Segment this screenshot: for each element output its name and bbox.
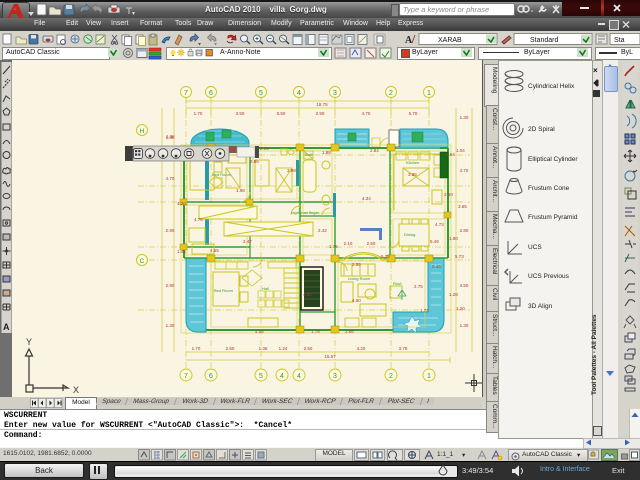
- svg-text:Elliptical Cylinder: Elliptical Cylinder: [528, 156, 578, 163]
- svg-text:2.84: 2.84: [370, 148, 379, 153]
- svg-text:4.76: 4.76: [194, 217, 203, 222]
- svg-text:4.70: 4.70: [460, 168, 469, 173]
- svg-text:UCS: UCS: [528, 244, 542, 251]
- svg-text:4: 4: [297, 373, 301, 380]
- svg-text:4.60: 4.60: [352, 298, 361, 303]
- svg-text:1.24: 1.24: [279, 346, 288, 351]
- svg-text:4.20: 4.20: [357, 346, 366, 351]
- svg-text:3: 3: [333, 90, 337, 97]
- svg-text:3: 3: [333, 373, 337, 380]
- svg-text:UCS Previous: UCS Previous: [528, 273, 570, 280]
- svg-text:3.98: 3.98: [287, 168, 296, 173]
- svg-text:Roof: Roof: [393, 281, 402, 286]
- svg-text:ragn man finger: ragn man finger: [291, 210, 320, 215]
- svg-text:18.75: 18.75: [316, 102, 328, 107]
- svg-text:3.65: 3.65: [458, 204, 467, 209]
- svg-text:1.30: 1.30: [166, 323, 175, 328]
- svg-text:7: 7: [184, 90, 188, 97]
- svg-text:1: 1: [427, 90, 431, 97]
- svg-text:2.90: 2.90: [316, 111, 325, 116]
- svg-text:4: 4: [297, 90, 301, 97]
- svg-text:2.42: 2.42: [318, 228, 327, 233]
- svg-text:1.64: 1.64: [446, 152, 455, 157]
- svg-text:4.70: 4.70: [362, 111, 371, 116]
- svg-text:1.30: 1.30: [460, 115, 469, 120]
- svg-text:5: 5: [259, 373, 263, 380]
- svg-text:2.80: 2.80: [460, 228, 469, 233]
- svg-text:Frustum Pyramid: Frustum Pyramid: [528, 214, 578, 221]
- svg-text:Bath: Bath: [305, 152, 313, 157]
- svg-text:Kitchen: Kitchen: [406, 160, 419, 165]
- svg-text:1.88: 1.88: [322, 150, 331, 155]
- svg-text:3.85: 3.85: [408, 172, 417, 177]
- svg-text:4.55: 4.55: [210, 248, 219, 253]
- svg-text:2.50: 2.50: [226, 346, 235, 351]
- svg-text:16.57: 16.57: [324, 354, 336, 359]
- svg-text:Y: Y: [26, 337, 32, 347]
- svg-text:1.45: 1.45: [177, 249, 186, 254]
- svg-text:2.47: 2.47: [243, 239, 252, 244]
- svg-text:1.20: 1.20: [456, 306, 465, 311]
- svg-text:1.30: 1.30: [460, 323, 469, 328]
- svg-text:6: 6: [209, 373, 213, 380]
- svg-text:1.73: 1.73: [420, 308, 429, 313]
- svg-text:2D Spiral: 2D Spiral: [528, 126, 555, 133]
- svg-text:1.30: 1.30: [166, 135, 175, 140]
- svg-text:H: H: [140, 128, 145, 135]
- svg-text:2.06: 2.06: [260, 146, 269, 151]
- svg-text:4.20: 4.20: [177, 201, 186, 206]
- svg-text:Bed Room: Bed Room: [212, 172, 232, 177]
- svg-text:A: A: [3, 322, 10, 332]
- svg-text:2: 2: [389, 90, 393, 97]
- svg-text:Cylindrical Helix: Cylindrical Helix: [528, 83, 575, 90]
- svg-text:3.50: 3.50: [236, 111, 245, 116]
- svg-text:2.10: 2.10: [344, 241, 353, 246]
- svg-text:4.34: 4.34: [362, 196, 371, 201]
- svg-text:3D Align: 3D Align: [528, 303, 553, 310]
- svg-text:5.50: 5.50: [277, 111, 286, 116]
- svg-text:6: 6: [209, 90, 213, 97]
- svg-text:2.90: 2.90: [166, 283, 175, 288]
- svg-text:0.43: 0.43: [432, 264, 441, 269]
- svg-text:5.73: 5.73: [455, 254, 464, 259]
- svg-text:4: 4: [280, 373, 284, 380]
- svg-text:4.50: 4.50: [460, 283, 469, 288]
- svg-text:1.04: 1.04: [456, 148, 465, 153]
- svg-text:4.80: 4.80: [303, 292, 312, 297]
- svg-text:X: X: [73, 385, 79, 395]
- svg-text:2.55: 2.55: [352, 262, 361, 267]
- svg-text:5: 5: [259, 90, 263, 97]
- svg-text:A: A: [405, 35, 413, 46]
- svg-text:1.36: 1.36: [259, 346, 268, 351]
- svg-text:Sta: Sta: [614, 37, 625, 44]
- svg-text:Bed Room: Bed Room: [214, 288, 234, 293]
- svg-text:2.50: 2.50: [367, 241, 376, 246]
- svg-text:Dining: Dining: [404, 232, 415, 237]
- svg-text:5.73: 5.73: [381, 254, 390, 259]
- svg-text:1: 1: [427, 373, 431, 380]
- svg-text:XARAB: XARAB: [438, 37, 462, 44]
- svg-text:2.86: 2.86: [250, 159, 259, 164]
- svg-text:1.70: 1.70: [192, 346, 201, 351]
- svg-text:4.70: 4.70: [166, 176, 175, 181]
- svg-text:C: C: [140, 258, 145, 265]
- svg-text:1.78: 1.78: [311, 329, 320, 334]
- svg-text:7: 7: [184, 373, 188, 380]
- svg-text:1.80: 1.80: [449, 236, 458, 241]
- svg-text:1.28: 1.28: [449, 292, 458, 297]
- svg-text:Living Room: Living Room: [348, 276, 371, 281]
- svg-text:2.60: 2.60: [444, 192, 453, 197]
- svg-text:Hall: Hall: [262, 286, 269, 291]
- svg-text:4.05: 4.05: [255, 329, 264, 334]
- svg-text:1.98: 1.98: [236, 188, 245, 193]
- svg-text:2.75: 2.75: [414, 284, 423, 289]
- svg-text:1.76: 1.76: [329, 244, 338, 249]
- svg-text:Standard: Standard: [530, 37, 559, 44]
- svg-text:2.88: 2.88: [345, 329, 354, 334]
- svg-text:2.50: 2.50: [304, 346, 313, 351]
- svg-text:2: 2: [389, 373, 393, 380]
- svg-text:Frustum Cone: Frustum Cone: [528, 185, 570, 192]
- svg-text:4.73: 4.73: [435, 222, 444, 227]
- svg-text:1.70: 1.70: [194, 111, 203, 116]
- svg-text:2.90: 2.90: [166, 228, 175, 233]
- svg-text:5.70: 5.70: [409, 111, 418, 116]
- svg-text:3.79: 3.79: [399, 346, 408, 351]
- svg-text:5.49: 5.49: [430, 239, 439, 244]
